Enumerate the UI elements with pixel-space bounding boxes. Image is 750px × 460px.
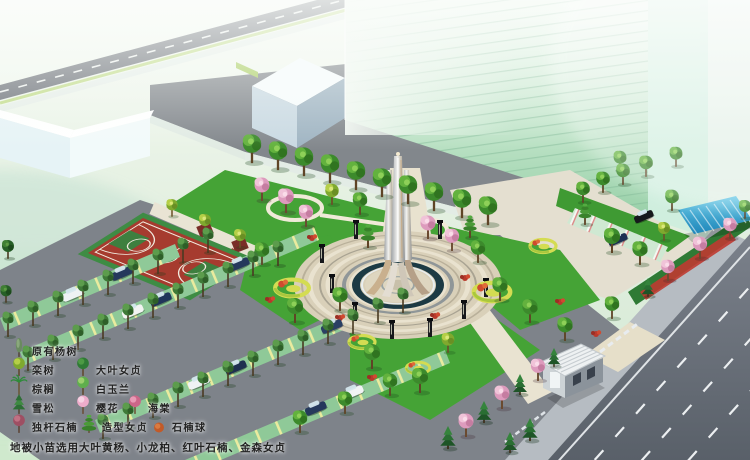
legend-note: 地被小苗选用大叶黄杨、小龙柏、红叶石楠、金森女贞 [10, 440, 340, 455]
photinia-tree-icon [10, 411, 28, 435]
plant-legend: 原有杨树 栾树 大叶女贞 棕榈 白玉兰 雪松 樱花 [10, 341, 340, 455]
landscape-rendering: 原有杨树 栾树 大叶女贞 棕榈 白玉兰 雪松 樱花 [0, 0, 750, 460]
legend-item: 独杆石楠 [10, 411, 80, 435]
topiary-privet-icon [80, 411, 98, 435]
legend-item: 造型女贞 [80, 411, 150, 435]
photinia-ball-icon [150, 411, 168, 435]
legend-label: 石楠球 [172, 422, 207, 435]
legend-label: 独杆石楠 [32, 422, 78, 435]
legend-item: 石楠球 [150, 411, 207, 435]
legend-label: 造型女贞 [102, 422, 148, 435]
